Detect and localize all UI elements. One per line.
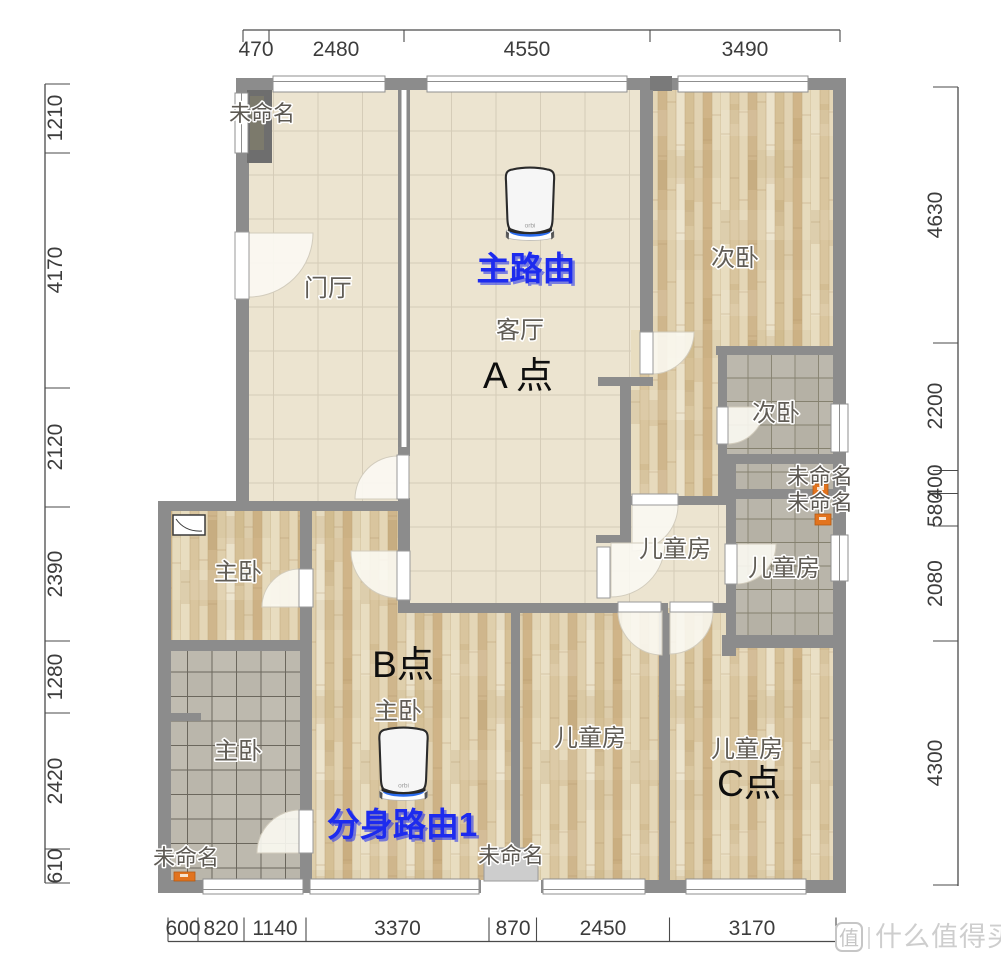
svg-text:什么值得买: 什么值得买: [875, 922, 1001, 952]
svg-text:400: 400: [924, 464, 947, 499]
svg-text:主路由: 主路由: [477, 250, 576, 287]
svg-text:4170: 4170: [44, 247, 67, 294]
svg-text:未命名: 未命名: [787, 464, 853, 489]
svg-text:B点: B点: [372, 644, 434, 685]
svg-text:儿童房: 儿童房: [748, 555, 820, 582]
svg-text:值: 值: [839, 927, 859, 950]
svg-text:470: 470: [238, 38, 273, 61]
svg-text:2480: 2480: [313, 38, 360, 61]
svg-text:3370: 3370: [374, 917, 421, 940]
svg-text:未命名: 未命名: [478, 843, 544, 868]
svg-text:次卧: 次卧: [711, 245, 759, 272]
svg-text:1280: 1280: [44, 654, 67, 701]
svg-text:儿童房: 儿童房: [711, 736, 783, 763]
svg-text:客厅: 客厅: [496, 317, 544, 344]
svg-text:儿童房: 儿童房: [554, 725, 626, 752]
svg-text:4550: 4550: [504, 38, 551, 61]
svg-text:820: 820: [203, 917, 238, 940]
svg-text:1210: 1210: [44, 95, 67, 142]
svg-text:3490: 3490: [722, 38, 769, 61]
svg-text:A 点: A 点: [483, 355, 553, 396]
svg-text:1140: 1140: [252, 917, 297, 940]
svg-text:3170: 3170: [729, 917, 776, 940]
svg-text:4630: 4630: [924, 192, 947, 239]
svg-text:2420: 2420: [44, 758, 67, 805]
svg-text:870: 870: [495, 917, 530, 940]
svg-text:2390: 2390: [44, 551, 67, 598]
svg-text:主卧: 主卧: [214, 738, 262, 765]
svg-text:2120: 2120: [44, 424, 67, 471]
svg-text:分身路由1: 分身路由1: [327, 806, 477, 843]
svg-text:4300: 4300: [924, 740, 947, 787]
svg-text:C点: C点: [717, 763, 781, 804]
svg-text:主卧: 主卧: [214, 559, 262, 586]
svg-text:未命名: 未命名: [153, 845, 219, 870]
svg-text:2080: 2080: [924, 560, 947, 607]
svg-text:未命名: 未命名: [229, 101, 295, 126]
svg-text:610: 610: [44, 848, 67, 883]
svg-text:2450: 2450: [580, 917, 627, 940]
svg-text:orbi: orbi: [525, 223, 536, 230]
svg-text:未命名: 未命名: [787, 490, 853, 515]
svg-text:600: 600: [165, 917, 200, 940]
svg-text:门厅: 门厅: [304, 275, 352, 302]
svg-text:主卧: 主卧: [374, 698, 422, 725]
svg-text:2200: 2200: [924, 383, 947, 430]
svg-text:儿童房: 儿童房: [639, 536, 711, 563]
svg-text:次卧: 次卧: [752, 400, 800, 427]
